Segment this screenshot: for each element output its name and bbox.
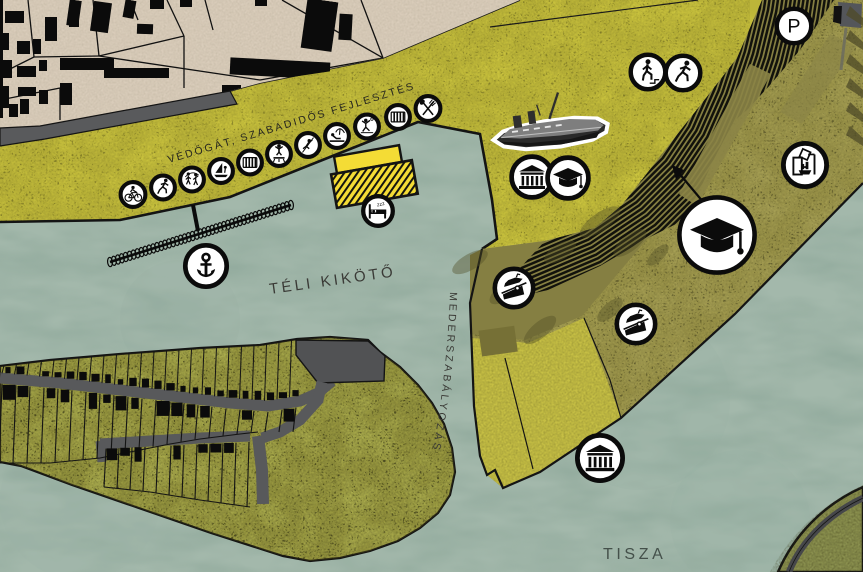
svg-text:P: P	[787, 15, 800, 37]
svg-text:TISZA: TISZA	[603, 546, 666, 563]
